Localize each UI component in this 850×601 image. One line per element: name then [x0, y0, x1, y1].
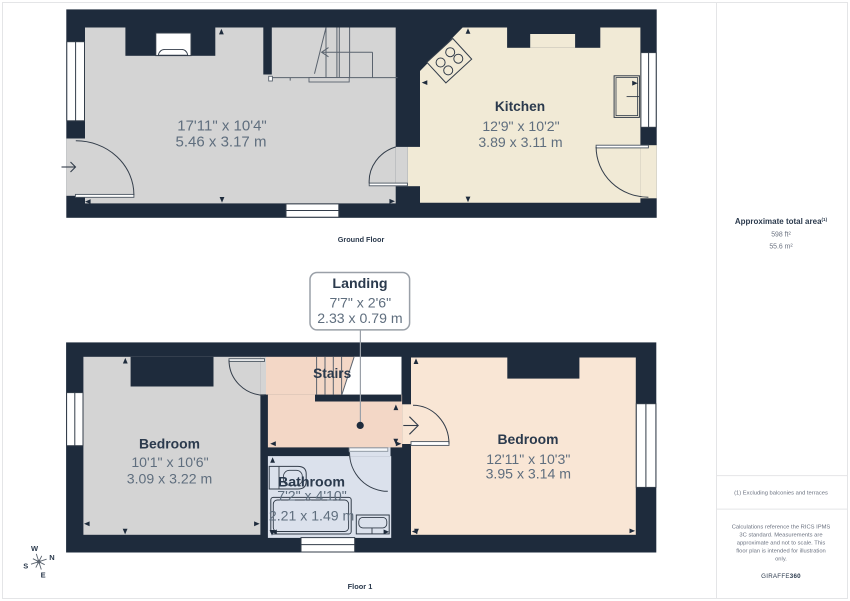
svg-text:5.46 x 3.17 m: 5.46 x 3.17 m: [176, 133, 267, 150]
svg-text:floor plan is intended for ill: floor plan is intended for illustration: [736, 549, 826, 555]
svg-text:3.95 x 3.14 m: 3.95 x 3.14 m: [486, 466, 571, 482]
svg-text:Stairs: Stairs: [313, 366, 351, 381]
svg-text:W: W: [31, 544, 39, 553]
svg-text:N: N: [49, 553, 54, 562]
svg-text:2.21 x 1.49 m: 2.21 x 1.49 m: [269, 507, 354, 523]
svg-text:3.89 x 3.11 m: 3.89 x 3.11 m: [478, 134, 562, 150]
svg-text:Bedroom: Bedroom: [498, 431, 559, 447]
svg-text:12'9" x 10'2": 12'9" x 10'2": [482, 118, 559, 134]
svg-text:3.09 x 3.22 m: 3.09 x 3.22 m: [127, 470, 212, 486]
svg-text:3C standard. Measurements are: 3C standard. Measurements are: [739, 532, 822, 538]
svg-text:7'7" x 2'6": 7'7" x 2'6": [329, 294, 391, 310]
svg-text:only.: only.: [775, 557, 787, 563]
svg-text:GIRAFFE360: GIRAFFE360: [761, 573, 801, 580]
svg-text:10'1" x 10'6": 10'1" x 10'6": [131, 454, 208, 470]
svg-text:S: S: [23, 562, 28, 571]
svg-text:Bedroom: Bedroom: [139, 435, 200, 451]
svg-text:(1) Excluding balconies and te: (1) Excluding balconies and terraces: [734, 490, 828, 496]
svg-text:17'11" x 10'4": 17'11" x 10'4": [177, 117, 267, 134]
svg-text:Landing: Landing: [332, 276, 387, 292]
svg-text:Approximate total area(1): Approximate total area(1): [735, 217, 828, 226]
svg-text:Kitchen: Kitchen: [495, 99, 545, 114]
svg-text:55.6 m²: 55.6 m²: [769, 243, 793, 250]
svg-text:E: E: [41, 570, 46, 579]
svg-text:Calculations reference the RIC: Calculations reference the RICS IPMS: [732, 524, 831, 530]
svg-text:Floor 1: Floor 1: [348, 582, 373, 591]
svg-text:Ground Floor: Ground Floor: [338, 235, 385, 244]
svg-text:598 ft²: 598 ft²: [771, 231, 791, 238]
svg-text:7'2" x 4'10": 7'2" x 4'10": [277, 487, 346, 503]
svg-text:approximate and not to scale.: approximate and not to scale. This: [737, 541, 826, 547]
svg-text:2.33 x 0.79 m: 2.33 x 0.79 m: [317, 310, 402, 326]
